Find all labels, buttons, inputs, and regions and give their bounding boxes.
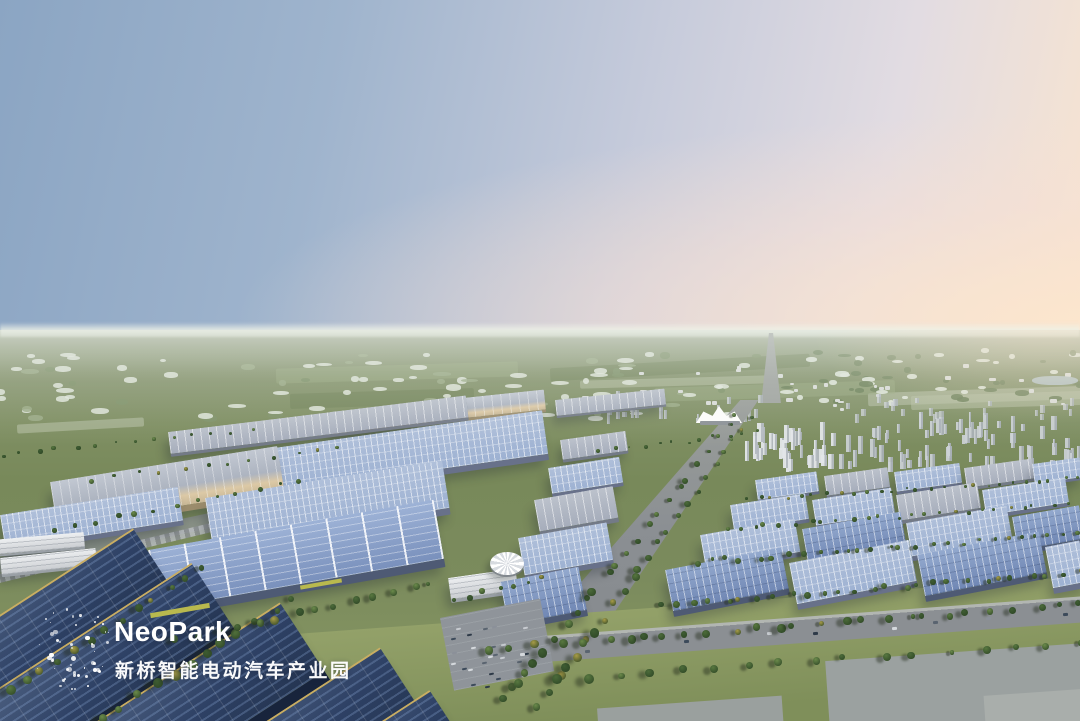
logo-dot — [66, 608, 69, 611]
logo-dot — [39, 644, 40, 645]
logo-dot — [105, 631, 106, 632]
sky — [0, 0, 1080, 336]
logo-dot — [87, 685, 89, 687]
logo-dot — [37, 668, 38, 669]
logo-dot — [94, 651, 95, 652]
logo-dot — [59, 685, 62, 688]
logo-dot — [94, 621, 97, 624]
logo-dot — [45, 618, 47, 620]
logo-dot — [77, 674, 80, 677]
logo-title: NeoPark — [114, 616, 231, 648]
logo-dot — [49, 653, 54, 658]
logo-dot — [71, 647, 73, 649]
neopark-dots-logo-icon — [30, 602, 114, 694]
logo-dot — [53, 630, 57, 634]
logo-dot — [72, 615, 74, 617]
logo-dot — [70, 643, 73, 646]
logo-dot — [64, 678, 66, 680]
logo-dot — [102, 623, 104, 625]
logo-dot — [85, 636, 89, 640]
logo-dot — [108, 632, 109, 633]
logo-dot — [91, 644, 95, 648]
logo-dot — [70, 664, 72, 666]
neopark-logo-lockup: NeoPark 新桥智能电动汽车产业园 — [30, 598, 360, 703]
logo-dot — [50, 622, 51, 623]
logo-dot — [106, 641, 109, 644]
logo-dot — [75, 624, 77, 626]
logo-dot — [71, 688, 73, 690]
logo-dot — [71, 656, 76, 661]
logo-dot — [51, 659, 54, 662]
logo-dot — [74, 688, 76, 690]
logo-dot — [53, 612, 54, 613]
logo-dot — [96, 668, 100, 672]
round-storage-dome — [490, 552, 524, 575]
sunset-glow — [690, 330, 1080, 460]
logo-dot — [54, 668, 55, 669]
logo-dot — [93, 662, 96, 665]
logo-subtitle: 新桥智能电动汽车产业园 — [115, 656, 352, 683]
logo-dot — [84, 667, 85, 668]
logo-dot — [97, 616, 100, 619]
logo-dot — [85, 675, 88, 678]
logo-dot — [102, 666, 103, 667]
neopark-aerial-image: NeoPark 新桥智能电动汽车产业园 — [0, 0, 1080, 721]
logo-dot — [80, 616, 81, 617]
logo-dot — [73, 674, 76, 677]
logo-dot — [66, 668, 69, 671]
logo-dot — [59, 641, 62, 644]
